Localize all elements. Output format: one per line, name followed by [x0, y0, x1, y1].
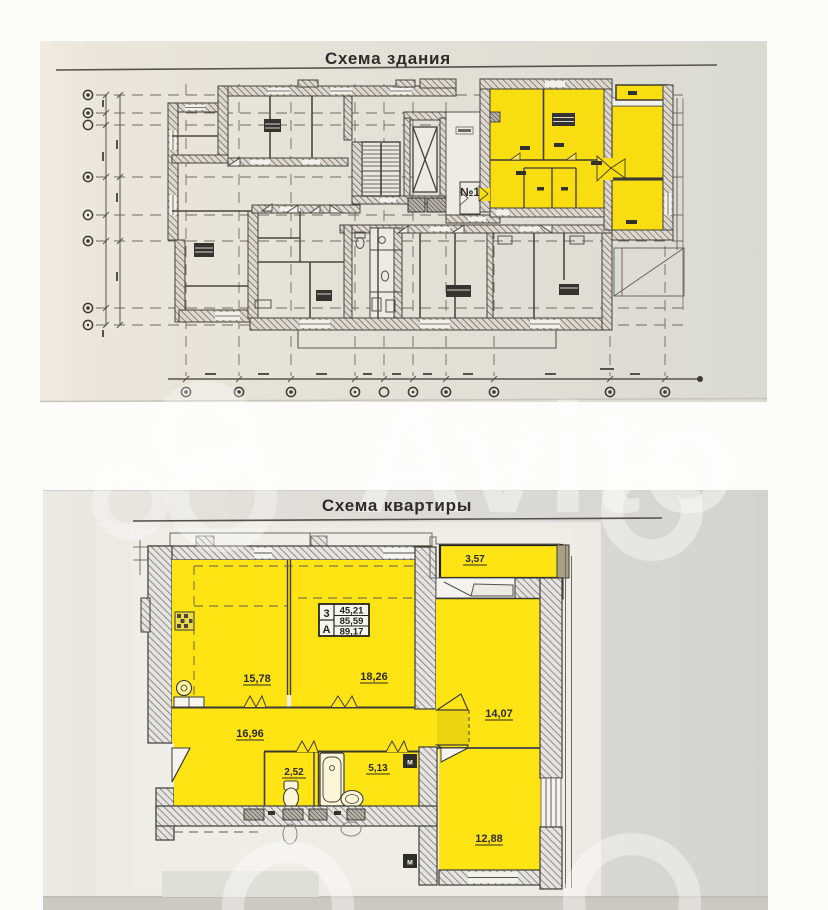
svg-text:Схема квартиры: Схема квартиры: [322, 496, 472, 515]
svg-text:№1: №1: [460, 185, 480, 199]
svg-text:12,88: 12,88: [475, 833, 503, 845]
svg-text:3,57: 3,57: [465, 554, 485, 565]
svg-text:2,52: 2,52: [284, 767, 304, 778]
svg-text:5,13: 5,13: [368, 763, 388, 774]
svg-text:18,26: 18,26: [360, 671, 388, 683]
svg-text:15,78: 15,78: [243, 673, 271, 685]
svg-text:16,96: 16,96: [236, 728, 264, 740]
svg-text:89,17: 89,17: [340, 627, 364, 638]
svg-text:45,21: 45,21: [340, 606, 364, 617]
svg-text:м: м: [407, 758, 413, 767]
svg-text:А: А: [323, 624, 331, 636]
svg-text:85,59: 85,59: [340, 616, 364, 627]
svg-text:14,07: 14,07: [485, 708, 513, 720]
svg-text:Схема здания: Схема здания: [325, 49, 451, 68]
svg-text:3: 3: [323, 608, 329, 620]
svg-text:м: м: [407, 858, 413, 867]
